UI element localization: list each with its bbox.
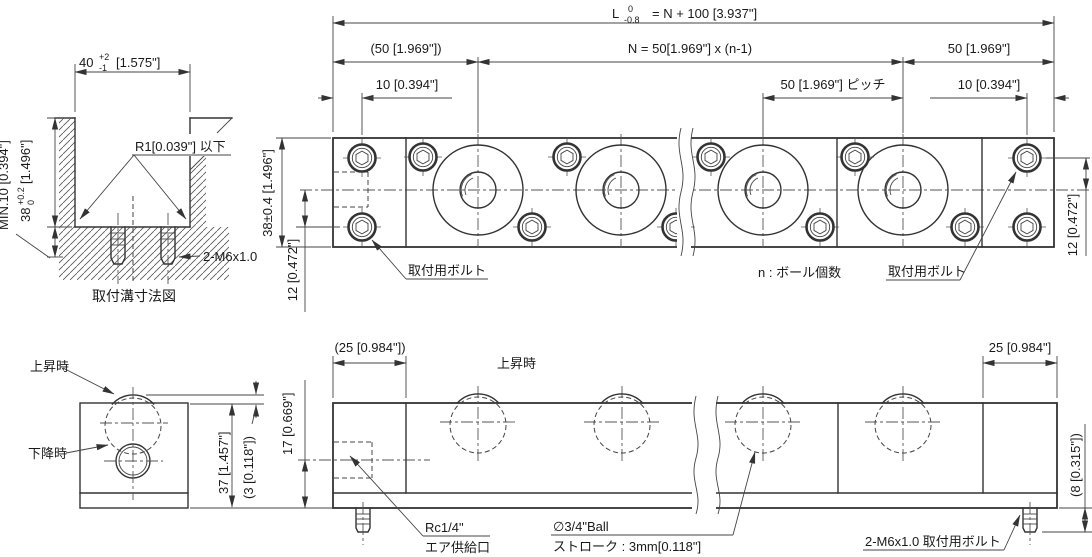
depth-tol-lower: 0 — [26, 200, 36, 205]
technical-drawing: R1[0.039"] 以下 2-M6x1.0 40 +2 -1 [1.575"]… — [0, 0, 1092, 557]
mounting-bolt — [1008, 139, 1046, 177]
radius-note: R1[0.039"] 以下 — [135, 139, 226, 154]
overall-tol-upper: 0 — [628, 4, 633, 14]
raised-label-side: 上昇時 — [497, 356, 536, 371]
ball-spec-note-line2: ストローク : 3mm[0.118"] — [553, 539, 701, 554]
groove-bolt-spec: 2-M6x1.0 — [203, 249, 257, 264]
technical-drawing-page: R1[0.039"] 以下 2-M6x1.0 40 +2 -1 [1.575"]… — [0, 0, 1092, 557]
port-height-dim: 17 [0.669"] — [280, 393, 295, 455]
width-value: 40 — [79, 55, 93, 70]
raised-label: 上昇時 — [30, 359, 69, 374]
body-width-dim: 38±0.4 [1.496"] — [260, 149, 275, 237]
right-end-span: 50 [1.969"] — [948, 41, 1010, 56]
ball-unit — [858, 134, 948, 248]
r1-leader-right — [134, 155, 186, 219]
right-end-length-dim: 25 [0.984"] — [989, 340, 1051, 355]
pitch-dim: 50 [1.969"] ピッチ — [780, 77, 885, 92]
groove-width-dim: 40 +2 -1 [1.575"] — [75, 52, 190, 112]
ball-side — [584, 386, 660, 462]
ball-spec-note-line1: ∅3/4"Ball — [553, 519, 609, 534]
stroke-height-dim: (3 [0.118"]) — [241, 436, 256, 499]
center-span: N = 50[1.969"] x (n-1) — [628, 41, 752, 56]
side-view: (25 [0.984"]) 25 [0.984"] 上昇時 (8 [0.315"… — [298, 340, 1092, 555]
left-end-length-dim: (25 [0.984"]) — [334, 340, 405, 355]
plan-view — [300, 128, 1090, 256]
ball-side — [865, 386, 941, 462]
mounting-bolt — [343, 208, 381, 246]
plan-dimensions: L 0 -0.8 = N + 100 [3.937"] (50 [1.969"]… — [260, 4, 1090, 312]
screw — [946, 208, 984, 246]
ball-unit — [576, 134, 666, 248]
depth-value: 38 — [18, 208, 33, 222]
mounting-bolt — [343, 139, 381, 177]
air-port-note-line2: エア供給口 — [425, 540, 490, 555]
overall-length-prefix: L — [612, 6, 619, 21]
lowered-label: 下降時 — [28, 446, 67, 461]
ball-side — [440, 386, 516, 462]
ball-count-note: n : ボール個数 — [758, 265, 841, 280]
screw — [801, 208, 839, 246]
width-tol-upper: +2 — [99, 52, 109, 62]
left-wall-hatch — [59, 118, 75, 227]
overall-tol-lower: -0.8 — [624, 15, 640, 25]
screw — [836, 138, 874, 176]
r1-leader-left — [80, 155, 134, 219]
end-view: 上昇時 下降時 37 [1.457"] (3 [0.118"]) 17 [0.6… — [28, 359, 333, 508]
depth-inch: [1.496"] — [18, 140, 33, 184]
groove-detail-view: R1[0.039"] 以下 2-M6x1.0 40 +2 -1 [1.575"]… — [0, 52, 257, 304]
break-line — [716, 396, 720, 514]
right-bolt-offset-dim: 12 [0.472"] — [1065, 194, 1080, 256]
air-port-note-line1: Rc1/4" — [425, 520, 464, 535]
air-passage-hidden — [334, 172, 368, 207]
break-gap — [692, 398, 716, 512]
end-view-body — [80, 403, 188, 508]
mounting-bolt-label-right: 取付用ボルト — [888, 264, 966, 279]
left-bolt-offset-dim: 12 [0.472"] — [285, 239, 300, 301]
plan-body — [333, 138, 1054, 247]
min-depth-text: MIN.10 [0.394"] — [0, 140, 11, 230]
right-wall-hatch — [190, 156, 206, 227]
width-inch: [1.575"] — [116, 55, 160, 70]
break-line — [691, 128, 695, 256]
ball-side — [725, 386, 801, 462]
screw — [513, 208, 551, 246]
depth-tol-upper: +0.2 — [16, 187, 26, 205]
total-height-dim: 37 [1.457"] — [216, 432, 231, 494]
right-offset-dim: 10 [0.394"] — [958, 77, 1020, 92]
ball-unit — [433, 134, 523, 248]
groove-caption: 取付溝寸法図 — [92, 288, 176, 304]
overall-length-value: = N + 100 [3.937"] — [652, 6, 757, 21]
screw — [404, 138, 442, 176]
mounting-bolt-note-side: 2-M6x1.0 取付用ボルト — [865, 534, 1001, 549]
screw — [692, 138, 730, 176]
left-end-span: (50 [1.969"]) — [370, 41, 441, 56]
bolt-protrusion-dim: (8 [0.315"]) — [1068, 433, 1083, 497]
ball-unit — [718, 134, 808, 248]
width-tol-lower: -1 — [99, 63, 107, 73]
mounting-bolt — [1008, 208, 1046, 246]
left-offset-dim: 10 [0.394"] — [376, 77, 438, 92]
mounting-bolt-label-left: 取付用ボルト — [408, 263, 486, 278]
